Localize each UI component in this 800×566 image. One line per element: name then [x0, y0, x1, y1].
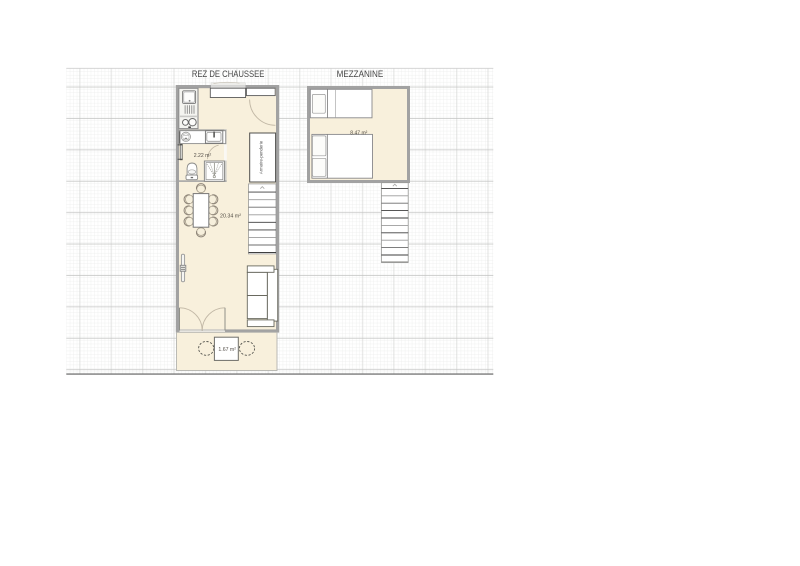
- svg-text:2.22 m²: 2.22 m²: [194, 153, 212, 159]
- svg-text:20.34 m²: 20.34 m²: [220, 213, 241, 219]
- svg-text:Armoire-penderie: Armoire-penderie: [259, 140, 264, 174]
- svg-text:1.67 m²: 1.67 m²: [218, 347, 236, 353]
- svg-text:MEZZANINE: MEZZANINE: [337, 69, 384, 79]
- svg-text:8.47 m²: 8.47 m²: [350, 130, 367, 136]
- svg-text:REZ DE CHAUSSEE: REZ DE CHAUSSEE: [192, 69, 265, 79]
